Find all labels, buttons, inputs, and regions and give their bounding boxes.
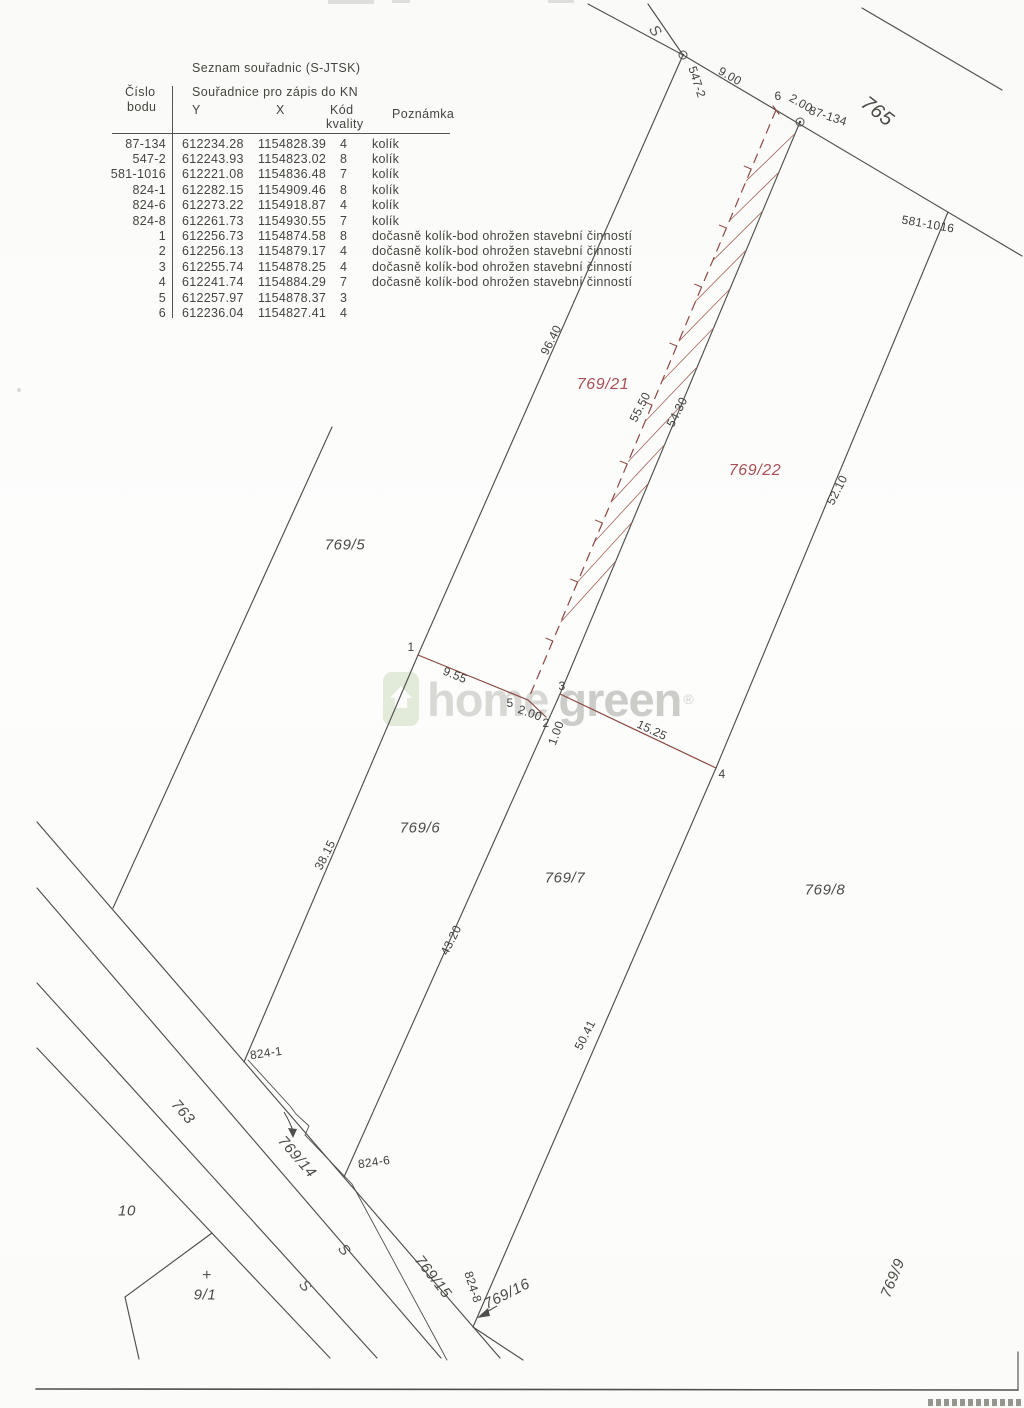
parcel-label-769-22: 769/22	[729, 462, 782, 480]
cell-note: kolík	[372, 198, 399, 212]
point-label-5: 5	[507, 696, 514, 710]
cell-point: 2	[104, 244, 166, 258]
col-header-quality: Kód	[330, 103, 353, 117]
table-row: 824-8612261.731154930.557kolík	[104, 213, 704, 228]
cell-note: dočasně kolík-bod ohrožen stavební činno…	[372, 260, 632, 274]
cell-quality: 4	[340, 198, 358, 212]
col-header-coords: Souřadnice pro zápis do KN	[192, 85, 358, 99]
cell-note: dočasně kolík-bod ohrožen stavební činno…	[372, 229, 632, 243]
cell-y: 612256.13	[182, 244, 258, 258]
cell-point: 3	[104, 260, 166, 274]
point-label-2: 2	[543, 716, 550, 730]
table-row: 824-6612273.221154918.874kolík	[104, 198, 704, 213]
cell-x: 1154823.02	[258, 152, 340, 166]
cell-point: 5	[104, 291, 166, 305]
cell-point: 824-8	[104, 214, 166, 228]
cell-quality: 4	[340, 306, 358, 320]
point-6-tick	[773, 106, 779, 114]
table-row: 3612255.741154878.254dočasně kolík-bod o…	[104, 259, 704, 274]
parcel-label-769-6: 769/6	[400, 820, 441, 837]
col-header-x: X	[276, 103, 285, 117]
cell-note: dočasně kolík-bod ohrožen stavební činno…	[372, 244, 632, 258]
col-header-point2: bodu	[127, 100, 156, 114]
cell-y: 612221.08	[182, 167, 258, 181]
road-edge-line	[37, 1048, 330, 1358]
boundary-line-769-5-west	[113, 427, 332, 908]
parcel-label-10: 10	[118, 1203, 136, 1220]
cell-point: 1	[104, 229, 166, 243]
cell-quality: 8	[340, 229, 358, 243]
cell-point: 87-134	[104, 137, 166, 151]
point-label-1: 1	[408, 640, 415, 654]
cell-quality: 7	[340, 167, 358, 181]
boundary-line-50-41	[473, 768, 716, 1327]
table-row: 581-1016612221.081154836.487kolík	[104, 167, 704, 182]
cell-quality: 3	[340, 291, 358, 305]
cell-point: 581-1016	[104, 167, 166, 181]
cell-y: 612234.28	[182, 137, 258, 151]
table-title: Seznam souřadnic (S-JTSK)	[192, 61, 360, 75]
cell-quality: 8	[340, 152, 358, 166]
parcel-label-9-1: 9/1	[194, 1287, 217, 1304]
cell-x: 1154874.58	[258, 229, 340, 243]
cell-quality: 8	[340, 183, 358, 197]
cell-point: 824-1	[104, 183, 166, 197]
cell-x: 1154827.41	[258, 306, 340, 320]
table-row: 824-1612282.151154909.468kolík	[104, 182, 704, 197]
cell-quality: 7	[340, 214, 358, 228]
cell-x: 1154879.17	[258, 244, 340, 258]
cross-symbol: +	[202, 1267, 212, 1285]
table-row: 5612257.971154878.373	[104, 290, 704, 305]
fence-offset-line	[248, 1060, 447, 1360]
col-header-quality2: kvality	[326, 117, 364, 131]
cell-note: kolík	[372, 183, 399, 197]
col-header-note: Poznámka	[392, 107, 454, 121]
table-row: 4612241.741154884.297dočasně kolík-bod o…	[104, 275, 704, 290]
cell-quality: 7	[340, 275, 358, 289]
table-row: 2612256.131154879.174dočasně kolík-bod o…	[104, 244, 704, 259]
cell-point: 547-2	[104, 152, 166, 166]
cell-y: 612273.22	[182, 198, 258, 212]
cell-y: 612241.74	[182, 275, 258, 289]
table-row: 547-2612243.931154823.028kolík	[104, 151, 704, 166]
cell-point: 6	[104, 306, 166, 320]
table-row: 87-134612234.281154828.394kolík	[104, 136, 704, 151]
point-label-3: 3	[559, 679, 566, 693]
cell-x: 1154828.39	[258, 137, 340, 151]
cell-quality: 4	[340, 260, 358, 274]
parcel-label-769-21: 769/21	[577, 376, 630, 394]
scanned-plan-page: home green ®	[0, 0, 1024, 1408]
cell-x: 1154884.29	[258, 275, 340, 289]
cell-y: 612261.73	[182, 214, 258, 228]
cell-quality: 4	[340, 244, 358, 258]
cell-y: 612282.15	[182, 183, 258, 197]
parcel-label-769-8: 769/8	[805, 882, 846, 899]
cell-note: kolík	[372, 152, 399, 166]
point-label-4: 4	[719, 767, 726, 781]
cell-note: kolík	[372, 167, 399, 181]
cell-note: kolík	[372, 137, 399, 151]
cell-x: 1154909.46	[258, 183, 340, 197]
coordinate-table: 87-134612234.281154828.394kolík 547-2612…	[104, 136, 704, 321]
road-edge-line	[37, 888, 441, 1358]
boundary-line	[862, 8, 1002, 90]
cell-x: 1154918.87	[258, 198, 340, 212]
boundary-line	[588, 4, 683, 55]
table-divider-horizontal	[112, 133, 450, 134]
point-label-6: 6	[775, 89, 782, 103]
scan-artifact-text	[928, 1399, 1024, 1406]
parcel-label-769-5: 769/5	[325, 537, 366, 554]
cell-y: 612243.93	[182, 152, 258, 166]
cell-point: 824-6	[104, 198, 166, 212]
cell-quality: 4	[340, 137, 358, 151]
parcel-label-769-7: 769/7	[545, 870, 586, 887]
cell-y: 612256.73	[182, 229, 258, 243]
table-row: 1612256.731154874.588dočasně kolík-bod o…	[104, 228, 704, 243]
col-header-point: Číslo	[125, 85, 155, 99]
cell-point: 4	[104, 275, 166, 289]
cell-x: 1154930.55	[258, 214, 340, 228]
cell-y: 612236.04	[182, 306, 258, 320]
cell-y: 612257.97	[182, 291, 258, 305]
col-header-y: Y	[192, 103, 201, 117]
cell-note: kolík	[372, 214, 399, 228]
table-row: 6612236.041154827.414	[104, 305, 704, 320]
cell-y: 612255.74	[182, 260, 258, 274]
map-frame-bottom	[36, 1389, 1018, 1390]
cell-x: 1154878.25	[258, 260, 340, 274]
cell-x: 1154836.48	[258, 167, 340, 181]
cell-note: dočasně kolík-bod ohrožen stavební činno…	[372, 275, 632, 289]
cell-x: 1154878.37	[258, 291, 340, 305]
